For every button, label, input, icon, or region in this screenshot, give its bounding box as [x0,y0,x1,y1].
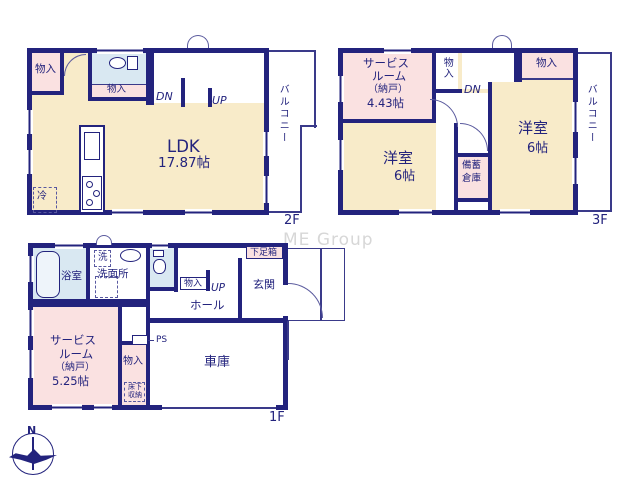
f3-west-room-size-label: 6帖 [394,170,415,185]
f2-closet-tl-label: 物入 [35,64,56,76]
f2-window-top [97,47,143,54]
f3-window-top [384,47,411,54]
f2-window-bottom-2 [185,209,212,216]
f2-stairs-up-label: UP [212,95,227,107]
f1-garage-opening [150,407,288,409]
f2-window-right-1 [263,132,270,156]
f1-toilet-tank-icon [153,250,164,257]
f1-entrance-label: 玄関 [253,279,275,291]
f1-window-left-3 [27,350,34,378]
compass-north-label: N [27,425,36,437]
f1-service-label-1: サービス [50,334,96,347]
f1-hall-wall-bottom [146,318,288,323]
f1-porch-tail-line [287,321,289,360]
f1-sink-icon [120,249,141,262]
f2-burner-icon-2 [93,190,100,197]
f1-floor-label: 1F [269,411,285,426]
f1-hall-closet-label: 物入 [184,279,202,289]
f1-ps-box [132,335,148,345]
f1-window-left-2 [27,310,34,336]
f2-ldk-size-label: 17.87帖 [158,156,210,171]
f1-toilet-wall-bottom [146,287,178,291]
f3-window-bottom-1 [399,209,432,216]
f3-window-left-1 [337,76,344,102]
f3-storage-wall-bottom [454,198,492,202]
f3-storage-label-1: 備蓄 [462,161,481,172]
f1-bathtub-icon [36,251,60,298]
f2-window-left-1 [26,110,33,134]
f1-window-bottom-1 [52,404,82,411]
f1-washer-label: 洗 [98,253,108,264]
f3-storage-wall-right [488,153,492,202]
f2-closet-mid-label: 物入 [107,85,126,96]
f2-window-left-2 [26,150,33,174]
f1-bath-label: 浴室 [61,271,82,283]
f2-window-right-2 [263,176,270,203]
f1-garage-stub-left [150,405,162,410]
f1-ps-label: PS [156,335,167,345]
f1-wall-bottom-left [28,405,155,410]
f3-closet-right-label: 物入 [536,58,557,70]
f2-balcony-label: バルコニー [277,84,288,144]
f3-window-arc [492,35,512,48]
f1-shoebox-label: 下足箱 [250,248,277,258]
f3-window-right-2 [572,158,579,184]
f1-window-arc [96,235,112,245]
f3-east-room-label: 洋室 [518,120,548,137]
f1-underfloor-label-2: 収納 [128,392,142,400]
floorplan-canvas: 物入 物入 DN UP LDK 17.87帖 冷 バルコニー 2F [0,0,640,480]
f1-window-bottom-2 [94,404,112,411]
f3-service-label-1: サービス [363,57,409,70]
f1-service-label-2: ルーム [59,348,93,361]
f3-window-left-2 [337,140,344,170]
f3-floor-label: 3F [592,214,608,229]
f2-kitchen-sink-icon [84,132,100,160]
f1-closet-label: 物入 [123,356,143,367]
f2-closet-mid-wall-bottom [92,97,150,101]
f2-burner-icon-3 [86,199,93,206]
f2-closet-tl-wall-bottom [32,91,64,95]
f2-toilet-bowl-icon [109,57,126,69]
f1-stairs-up-label: UP [211,283,225,295]
f3-balcony-label: バルコニー [585,84,596,144]
f1-window-left-1 [27,256,34,282]
f3-service-label-2: ルーム [372,70,406,83]
f3-west-room-label: 洋室 [383,150,413,167]
f1-service-label-4: 5.25帖 [52,375,89,388]
f2-ldk-label: LDK [167,138,200,156]
f3-east-room-size-label: 6帖 [527,142,548,157]
f2-stairs-wall-left [150,48,154,105]
f3-closet-left-wall-bottom [432,89,462,93]
f3-window-bottom-2 [500,209,530,216]
f3-stairs-dn-label: DN [464,84,481,96]
f3-window-right-1 [572,102,579,132]
f1-closet-wall-right [146,303,150,410]
f2-stairs-stub1 [181,78,185,107]
f1-service-label-3: （納戸） [55,362,95,373]
f2-wall-bottom [27,210,269,215]
f1-window-top-2 [152,242,168,249]
f1-washroom-label: 洗面所 [97,269,129,281]
f2-window-bottom-1 [112,209,143,216]
f1-ps-line [148,340,154,341]
f3-closet-left-label: 物入 [441,57,452,79]
f2-balcony-step [300,125,317,127]
f1-stairs [178,248,242,280]
f1-hall-label: ホール [190,299,225,312]
f2-burner-icon-1 [86,181,93,188]
f2-floor-label: 2F [284,214,300,229]
f3-closet-right-divider [522,78,573,80]
f1-bath-wall-right [86,243,90,303]
f1-window-top-1 [55,242,83,249]
f3-wall-bottom [338,210,578,215]
f1-entrance-wall-left [238,258,242,322]
f1-garage-label: 車庫 [204,356,230,371]
f2-fridge-label: 冷 [37,191,47,202]
f2-toilet-tank-icon [127,56,138,70]
f2-window-arc [187,35,209,48]
f3-service-label-4: 4.43帖 [367,97,404,110]
f2-stairs-dn-label: DN [156,91,173,103]
f3-service-label-3: （納戸） [368,84,408,95]
f3-storage-label-2: 倉庫 [462,174,481,185]
f1-toilet-bowl-icon [153,259,166,274]
